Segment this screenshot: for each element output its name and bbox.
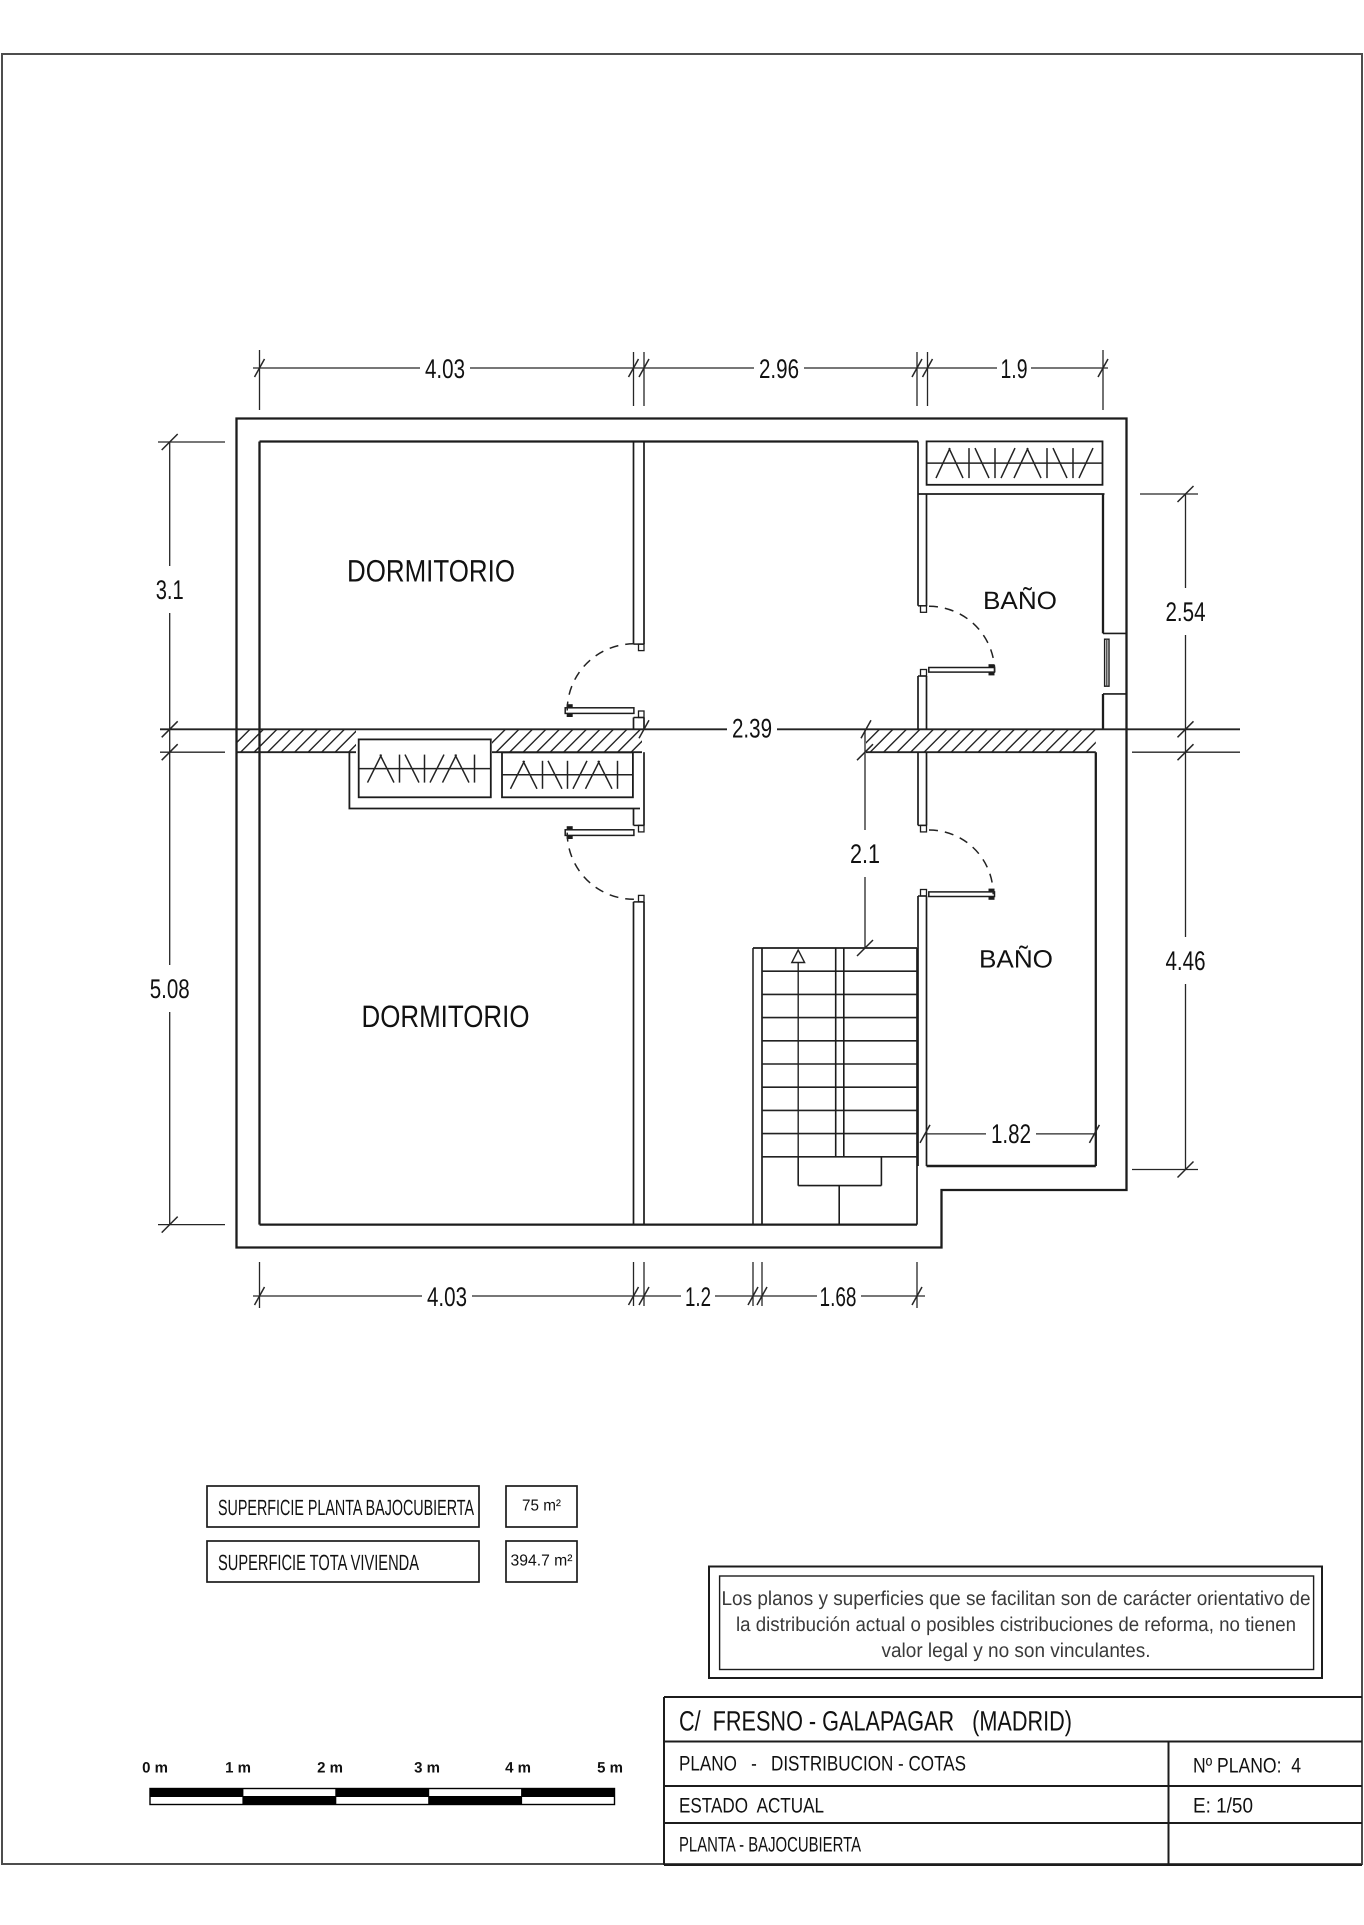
svg-text:Los planos y superficies que s: Los planos y superficies que se facilita…: [722, 1588, 1311, 1610]
svg-text:5 m: 5 m: [597, 1760, 623, 1777]
svg-text:1.9: 1.9: [1001, 354, 1028, 384]
svg-text:SUPERFICIE TOTA VIVIENDA: SUPERFICIE TOTA VIVIENDA: [218, 1550, 419, 1575]
svg-text:la distribución actual o posib: la distribución actual o posibles cistri…: [736, 1614, 1296, 1636]
svg-text:4.03: 4.03: [427, 1282, 467, 1312]
svg-text:2.1: 2.1: [850, 839, 880, 869]
svg-text:BAÑO: BAÑO: [983, 587, 1057, 615]
svg-text:0 m: 0 m: [142, 1760, 168, 1777]
svg-text:BAÑO: BAÑO: [979, 946, 1053, 974]
svg-text:E: 1/50: E: 1/50: [1193, 1795, 1253, 1818]
svg-text:DORMITORIO: DORMITORIO: [347, 554, 515, 589]
svg-text:PLANO - DISTRIBUCION - COT: PLANO - DISTRIBUCION - COTAS: [679, 1753, 966, 1776]
svg-text:5.08: 5.08: [150, 974, 190, 1004]
svg-text:DORMITORIO: DORMITORIO: [362, 999, 530, 1034]
svg-text:PLANTA - BAJOCUBIERTA: PLANTA - BAJOCUBIERTA: [679, 1834, 861, 1857]
svg-text:1 m: 1 m: [225, 1760, 251, 1777]
svg-text:4.46: 4.46: [1166, 946, 1206, 976]
svg-text:1.68: 1.68: [820, 1282, 857, 1312]
svg-text:ESTADO ACTUAL: ESTADO ACTUAL: [679, 1795, 824, 1818]
svg-text:75 m²: 75 m²: [522, 1498, 562, 1515]
svg-text:SUPERFICIE PLANTA BAJOCUBIERTA: SUPERFICIE PLANTA BAJOCUBIERTA: [218, 1495, 474, 1520]
svg-text:valor legal y no son vinculant: valor legal y no son vinculantes.: [882, 1640, 1151, 1662]
svg-text:3.1: 3.1: [156, 575, 184, 605]
svg-text:1.2: 1.2: [685, 1282, 711, 1312]
svg-text:2.39: 2.39: [732, 714, 772, 744]
svg-text:2.54: 2.54: [1166, 597, 1206, 627]
svg-text:394.7 m²: 394.7 m²: [511, 1553, 574, 1570]
svg-text:2 m: 2 m: [317, 1760, 343, 1777]
svg-text:C/ FRESNO - GALAPAGAR (MADR: C/ FRESNO - GALAPAGAR (MADRID): [679, 1706, 1072, 1737]
svg-text:4.03: 4.03: [425, 354, 465, 384]
svg-text:Nº PLANO: 4: Nº PLANO: 4: [1193, 1755, 1301, 1778]
svg-text:2.96: 2.96: [759, 354, 799, 384]
svg-text:3 m: 3 m: [414, 1760, 440, 1777]
svg-text:1.82: 1.82: [991, 1119, 1031, 1149]
svg-text:4 m: 4 m: [505, 1760, 531, 1777]
